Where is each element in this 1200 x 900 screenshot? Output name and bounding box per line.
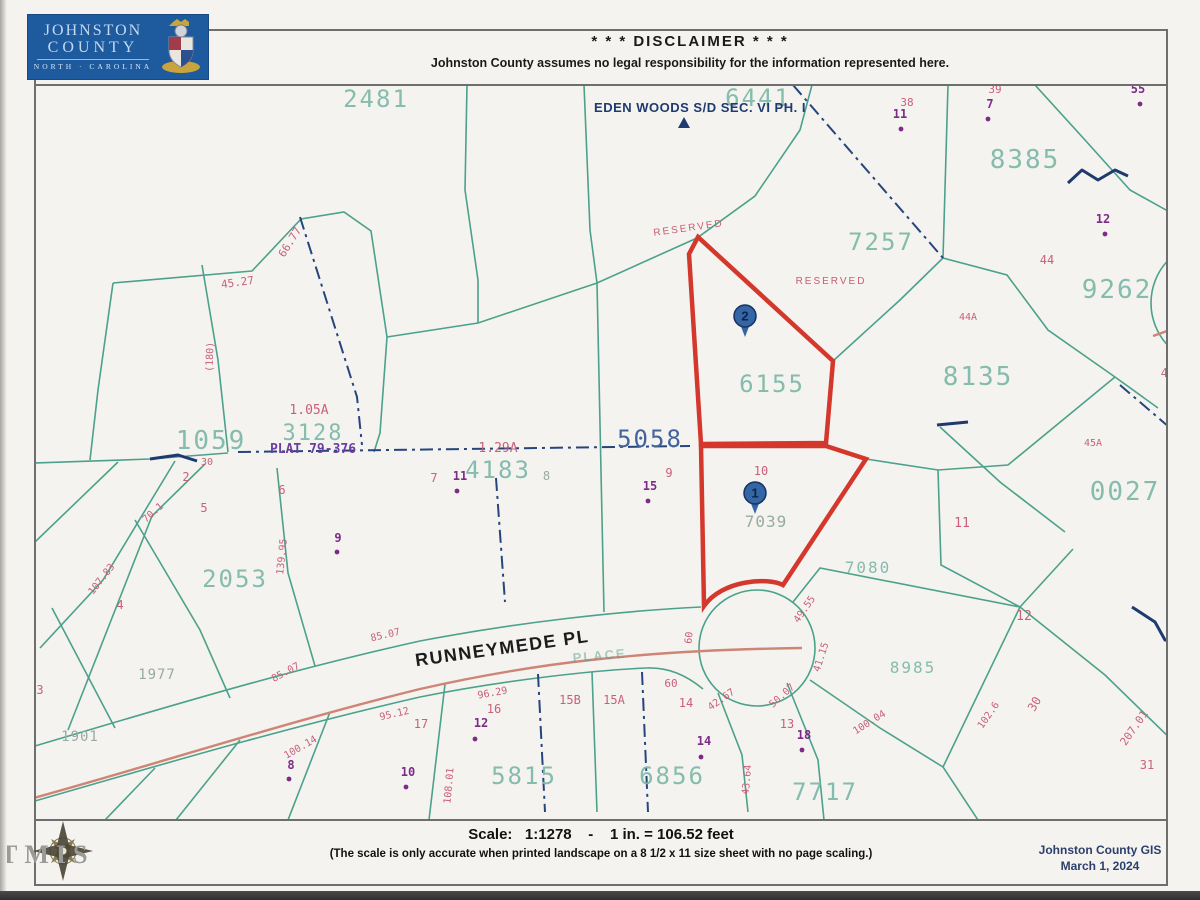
map-label: 11 [453,469,467,483]
map-label: 9 [334,531,341,545]
map-label: RESERVED [796,276,867,287]
map-label: PLACE [572,646,627,666]
map-label: 8 [543,469,551,483]
map-credit: Johnston County GIS March 1, 2024 [1020,843,1180,874]
map-label: 14 [679,696,693,710]
map-label: 107.83 [87,562,118,597]
highlight-parcel-6155[interactable] [689,237,833,444]
map-label: 18 [797,728,811,742]
map-label: 17 [414,717,428,731]
map-label: 60 [664,677,677,690]
map-label: 31 [1140,758,1154,772]
map-label: 8385 [990,145,1061,175]
scan-bottom-edge [0,891,1200,900]
map-label: 0027 [1090,477,1161,507]
map-label: 1059 [176,426,247,456]
map-label: 7080 [845,558,892,577]
map-pin-2[interactable]: 2 [734,305,756,337]
map-label: 12 [474,716,488,730]
map-label: 60 [683,631,695,644]
subdivision-label: EDEN WOODS S/D SEC. VI PH. I [594,100,806,115]
map-label: 9262 [1082,275,1153,305]
map-label: 6856 [639,762,705,790]
map-label: 1.05A [289,403,328,418]
map-label: 3 [36,683,43,697]
map-label: 12 [1096,212,1110,226]
map-label: 6 [278,483,285,497]
credit-agency: Johnston County GIS [1020,843,1180,859]
map-label: 7717 [792,778,858,806]
parcel-map-svg: 2481644172578385926281350027615510593128… [0,0,1200,900]
map-label: (180) [204,342,216,372]
map-label: 7 [986,97,993,111]
map-label: 10 [754,464,768,478]
address-point-dot [800,748,805,753]
map-label: 2 [182,470,189,484]
map-label: 85.07 [270,661,302,685]
address-point-dot [404,785,409,790]
address-point-dot [1138,102,1143,107]
map-label: 9 [665,466,672,480]
map-pins: 12 [734,305,766,514]
address-point-dot [455,489,460,494]
map-label: 7 [430,471,437,485]
map-label: 14 [697,734,711,748]
map-sheet: 2481644172578385926281350027615510593128… [0,0,1200,900]
map-label: 5 [200,501,207,515]
map-label: 5815 [491,762,557,790]
map-label: 12 [1016,609,1032,624]
map-pin-number: 2 [741,309,748,324]
map-label: 2481 [343,85,409,113]
map-label: 45.27 [220,274,255,291]
address-point-dot [473,737,478,742]
map-label: 96.29 [477,686,509,702]
map-label: 70.1 [141,501,166,525]
map-label: 95.12 [379,706,411,723]
map-label: 102.6 [976,700,1002,731]
map-label: 8 [287,758,294,772]
map-label: 10 [401,765,415,779]
map-label: 43.64 [741,764,755,795]
logo-state-name: NORTH · CAROLINA [27,63,159,71]
map-label: PLAT 79-376 [270,442,356,457]
logo-county-name-1: JOHNSTON [27,23,159,39]
map-label: 1.29A [478,441,517,456]
map-label: RESERVED [653,218,725,239]
disclaimer-title: * * * DISCLAIMER * * * [220,33,1160,50]
map-label: 6155 [739,370,805,398]
address-point-dot [899,127,904,132]
map-label: 30 [201,457,213,468]
map-pin-number: 1 [751,486,758,501]
county-logo: JOHNSTON COUNTY NORTH · CAROLINA [27,14,209,80]
map-label: 15B [559,693,581,707]
map-label: 4 [116,598,123,612]
address-point-dot [287,777,292,782]
map-label: 11 [954,516,970,531]
map-label: 108.01 [442,767,456,804]
address-point-dot [646,499,651,504]
map-label: 2053 [202,565,268,593]
map-label: 11 [893,107,907,121]
address-point-dot [699,755,704,760]
address-point-dot [1103,232,1108,237]
map-label: 4183 [465,456,531,484]
highlighted-parcels [689,237,866,606]
disclaimer-body: Johnston County assumes no legal respons… [220,56,1160,70]
map-label: 44 [1040,253,1054,267]
logo-county-name-2: COUNTY [27,40,159,56]
scan-edge [0,0,7,900]
map-label: 15A [603,693,625,707]
address-point-dot [986,117,991,122]
address-point-dot [335,550,340,555]
map-label: 8135 [943,362,1014,392]
map-label: 207.01 [1117,708,1150,748]
map-label: 8985 [890,658,937,677]
map-label: 1977 [138,667,176,683]
county-crest-icon [159,19,203,75]
map-label: 30 [1025,694,1044,714]
map-label: 85.07 [370,627,402,644]
map-label: 44A [959,312,977,323]
map-label: 15 [643,479,657,493]
credit-date: March 1, 2024 [1020,859,1180,875]
map-label: 16 [487,702,501,716]
road-runneymede [30,326,1181,801]
map-label: 1901 [61,729,99,745]
map-label: 105 [22,645,40,666]
disclaimer: * * * DISCLAIMER * * * Johnston County a… [220,30,1160,70]
subdivision-triangle-marker [678,117,690,128]
map-label: 7257 [848,228,914,256]
map-label: 7039 [745,512,788,531]
map-label: 45A [1084,438,1102,449]
map-pin-1[interactable]: 1 [744,482,766,514]
scale-block: Scale: 1:1278 - 1 in. = 106.52 feet (The… [35,826,1167,860]
scale-note: (The scale is only accurate when printed… [35,848,1167,860]
map-labels: 2481644172578385926281350027615510593128… [22,82,1176,806]
scale-text: Scale: 1:1278 - 1 in. = 106.52 feet [35,826,1167,843]
map-label: 5058 [617,425,683,453]
map-label: 13 [780,717,794,731]
